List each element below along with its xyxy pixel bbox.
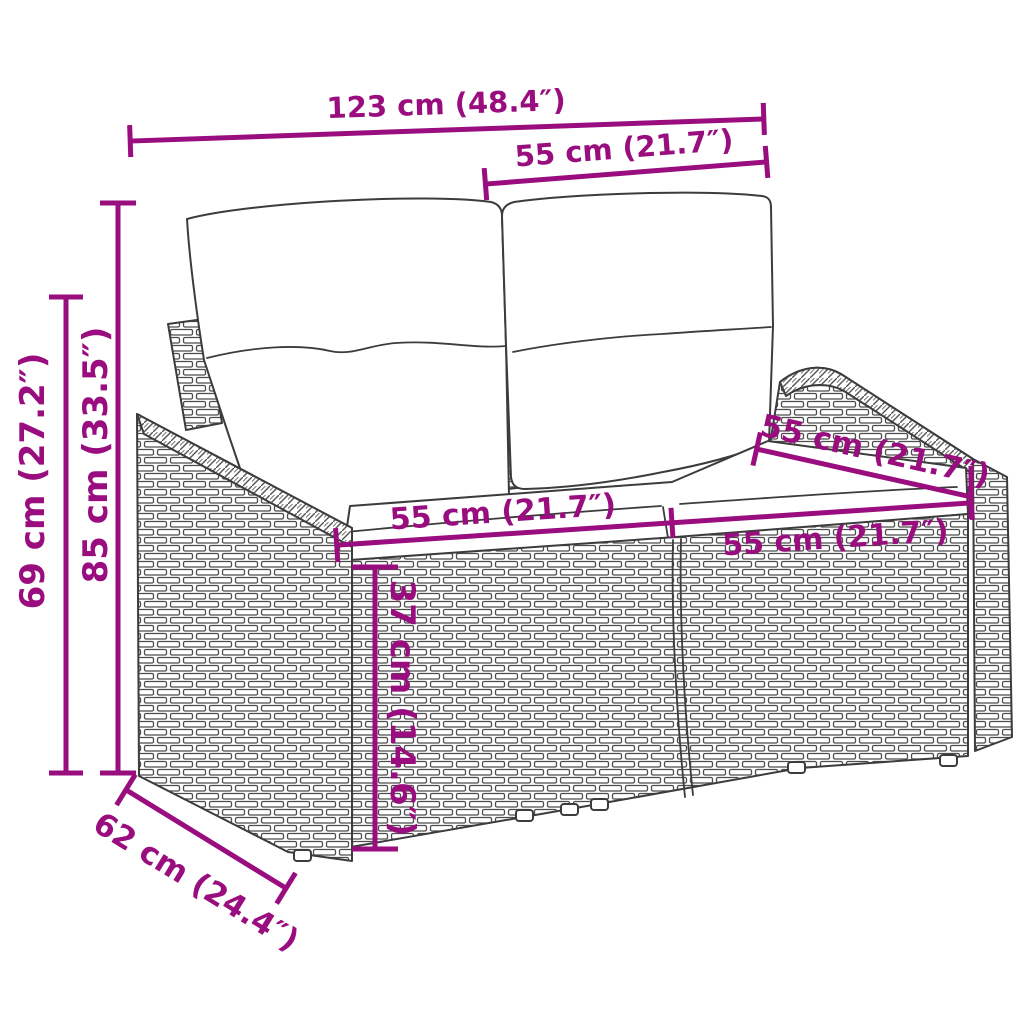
foot [294,850,311,861]
loveseat-dimension-diagram: 123 cm (48.4″) 55 cm (21.7″) 85 cm (33.5… [0,0,1024,1024]
foot [940,755,957,766]
dim-label-armrest-height: 69 cm (27.2″) [13,353,53,610]
dim-right-seat-width-top: 55 cm (21.7″) [482,120,768,200]
foot [561,804,578,815]
front-base-panel [345,514,968,848]
dim-label-overall-height: 85 cm (33.5″) [76,327,116,584]
foot [788,762,805,773]
dim-label-seat-height: 37 cm (14.6″) [382,580,422,837]
dim-label-overall-width: 123 cm (48.4″) [326,83,566,125]
foot [591,799,608,810]
right-back-cushion [502,193,773,489]
dimension-diagram-canvas: 123 cm (48.4″) 55 cm (21.7″) 85 cm (33.5… [0,0,1024,1024]
right-side-panel [973,459,1012,751]
dim-overall-height: 85 cm (33.5″) [76,203,136,773]
dim-armrest-height: 69 cm (27.2″) [13,297,83,773]
foot [516,810,533,821]
